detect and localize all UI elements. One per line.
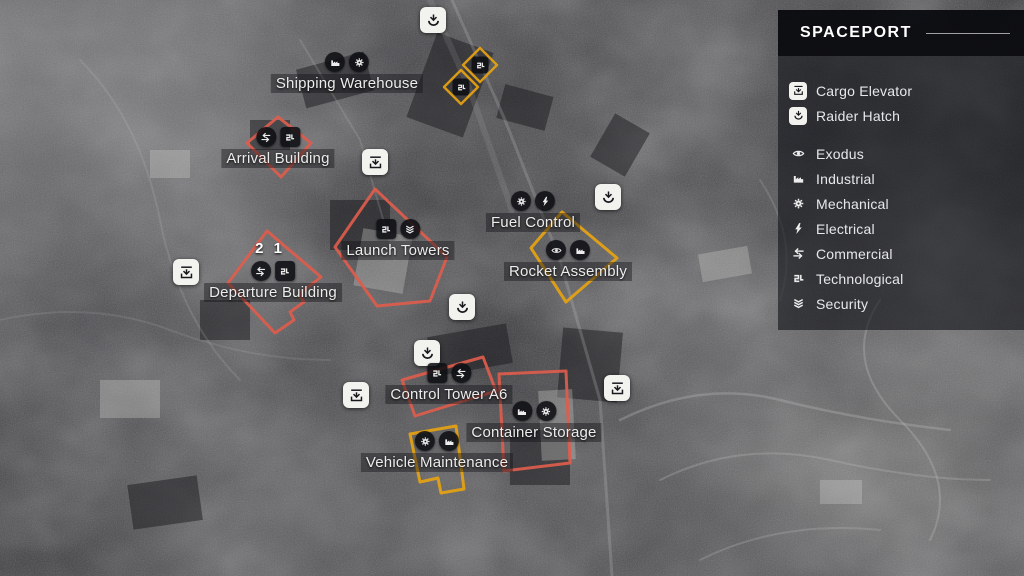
raider-hatch-icon xyxy=(419,345,436,362)
industrial-icon xyxy=(570,240,590,260)
raider-hatch-icon xyxy=(425,12,442,29)
commercial-icon xyxy=(451,363,471,383)
raider-hatch-icon xyxy=(789,107,807,125)
mechanical-icon xyxy=(536,401,556,421)
location-label: Rocket Assembly xyxy=(504,262,632,281)
title-rule xyxy=(926,33,1010,34)
map-location-vehicle-maintenance[interactable]: Vehicle Maintenance xyxy=(361,431,513,472)
raider-hatch-marker[interactable] xyxy=(595,184,621,210)
technological-icon xyxy=(275,261,295,281)
cargo-elevator-icon xyxy=(348,387,365,404)
raider-hatch-marker[interactable] xyxy=(420,7,446,33)
mechanical-icon xyxy=(415,431,435,451)
loot-counter: 2 1 xyxy=(255,240,285,257)
security-icon xyxy=(400,219,420,239)
electrical-icon xyxy=(789,220,807,238)
industrial-icon xyxy=(439,431,459,451)
region-title: SPACEPORT xyxy=(800,24,912,42)
cargo-elevator-marker[interactable] xyxy=(173,259,199,285)
technological-icon xyxy=(789,270,807,288)
technological-icon xyxy=(453,79,470,96)
map-screen: Shipping Warehouse Arrival Building 2 1 … xyxy=(0,0,1024,576)
legend-item-security: Security xyxy=(788,291,1014,316)
security-icon xyxy=(789,295,807,313)
legend-item-cargo-elevator: Cargo Elevator xyxy=(788,78,1014,103)
raider-hatch-icon xyxy=(600,189,617,206)
exodus-icon xyxy=(546,240,566,260)
map-location-launch-towers[interactable]: Launch Towers xyxy=(341,219,454,260)
industrial-icon xyxy=(789,170,807,188)
technological-icon xyxy=(280,127,300,147)
industrial-icon xyxy=(512,401,532,421)
legend-item-technological: Technological xyxy=(788,266,1014,291)
legend-item-raider-hatch: Raider Hatch xyxy=(788,103,1014,128)
cargo-elevator-marker[interactable] xyxy=(343,382,369,408)
commercial-icon xyxy=(256,127,276,147)
legend-item-commercial: Commercial xyxy=(788,241,1014,266)
map-location-control-tower-a6[interactable]: Control Tower A6 xyxy=(385,363,512,404)
cargo-elevator-icon xyxy=(789,82,807,100)
map-location-departure-building[interactable]: 2 1 Departure Building xyxy=(204,261,342,302)
location-label: Arrival Building xyxy=(221,149,334,168)
legend-item-mechanical: Mechanical xyxy=(788,191,1014,216)
legend-item-exodus: Exodus xyxy=(788,141,1014,166)
map-location-rocket-assembly[interactable]: Rocket Assembly xyxy=(504,240,632,281)
cargo-elevator-icon xyxy=(178,264,195,281)
mechanical-icon xyxy=(349,52,369,72)
location-label: Fuel Control xyxy=(486,213,580,232)
raider-hatch-icon xyxy=(454,299,471,316)
commercial-icon xyxy=(789,245,807,263)
legend-header: SPACEPORT xyxy=(778,10,1024,56)
map-location-fuel-control[interactable]: Fuel Control xyxy=(486,191,580,232)
commercial-icon xyxy=(251,261,271,281)
mechanical-icon xyxy=(511,191,531,211)
location-label: Launch Towers xyxy=(341,241,454,260)
cargo-elevator-icon xyxy=(609,380,626,397)
location-label: Departure Building xyxy=(204,283,342,302)
technological-icon xyxy=(472,57,489,74)
map-location-shipping-warehouse[interactable]: Shipping Warehouse xyxy=(271,52,423,93)
cargo-elevator-marker[interactable] xyxy=(604,375,630,401)
legend-item-electrical: Electrical xyxy=(788,216,1014,241)
legend-divider xyxy=(788,128,1014,141)
location-label: Shipping Warehouse xyxy=(271,74,423,93)
location-label: Vehicle Maintenance xyxy=(361,453,513,472)
exodus-icon xyxy=(789,145,807,163)
legend-body: Cargo Elevator Raider Hatch Exodus Indus… xyxy=(778,56,1024,330)
legend-panel: SPACEPORT Cargo Elevator Raider Hatch Ex… xyxy=(778,10,1024,330)
technological-icon xyxy=(376,219,396,239)
electrical-icon xyxy=(535,191,555,211)
technological-icon xyxy=(427,363,447,383)
cargo-elevator-marker[interactable] xyxy=(362,149,388,175)
mechanical-icon xyxy=(789,195,807,213)
industrial-icon xyxy=(325,52,345,72)
cargo-elevator-icon xyxy=(367,154,384,171)
raider-hatch-marker[interactable] xyxy=(449,294,475,320)
legend-item-industrial: Industrial xyxy=(788,166,1014,191)
map-location-arrival-building[interactable]: Arrival Building xyxy=(221,127,334,168)
